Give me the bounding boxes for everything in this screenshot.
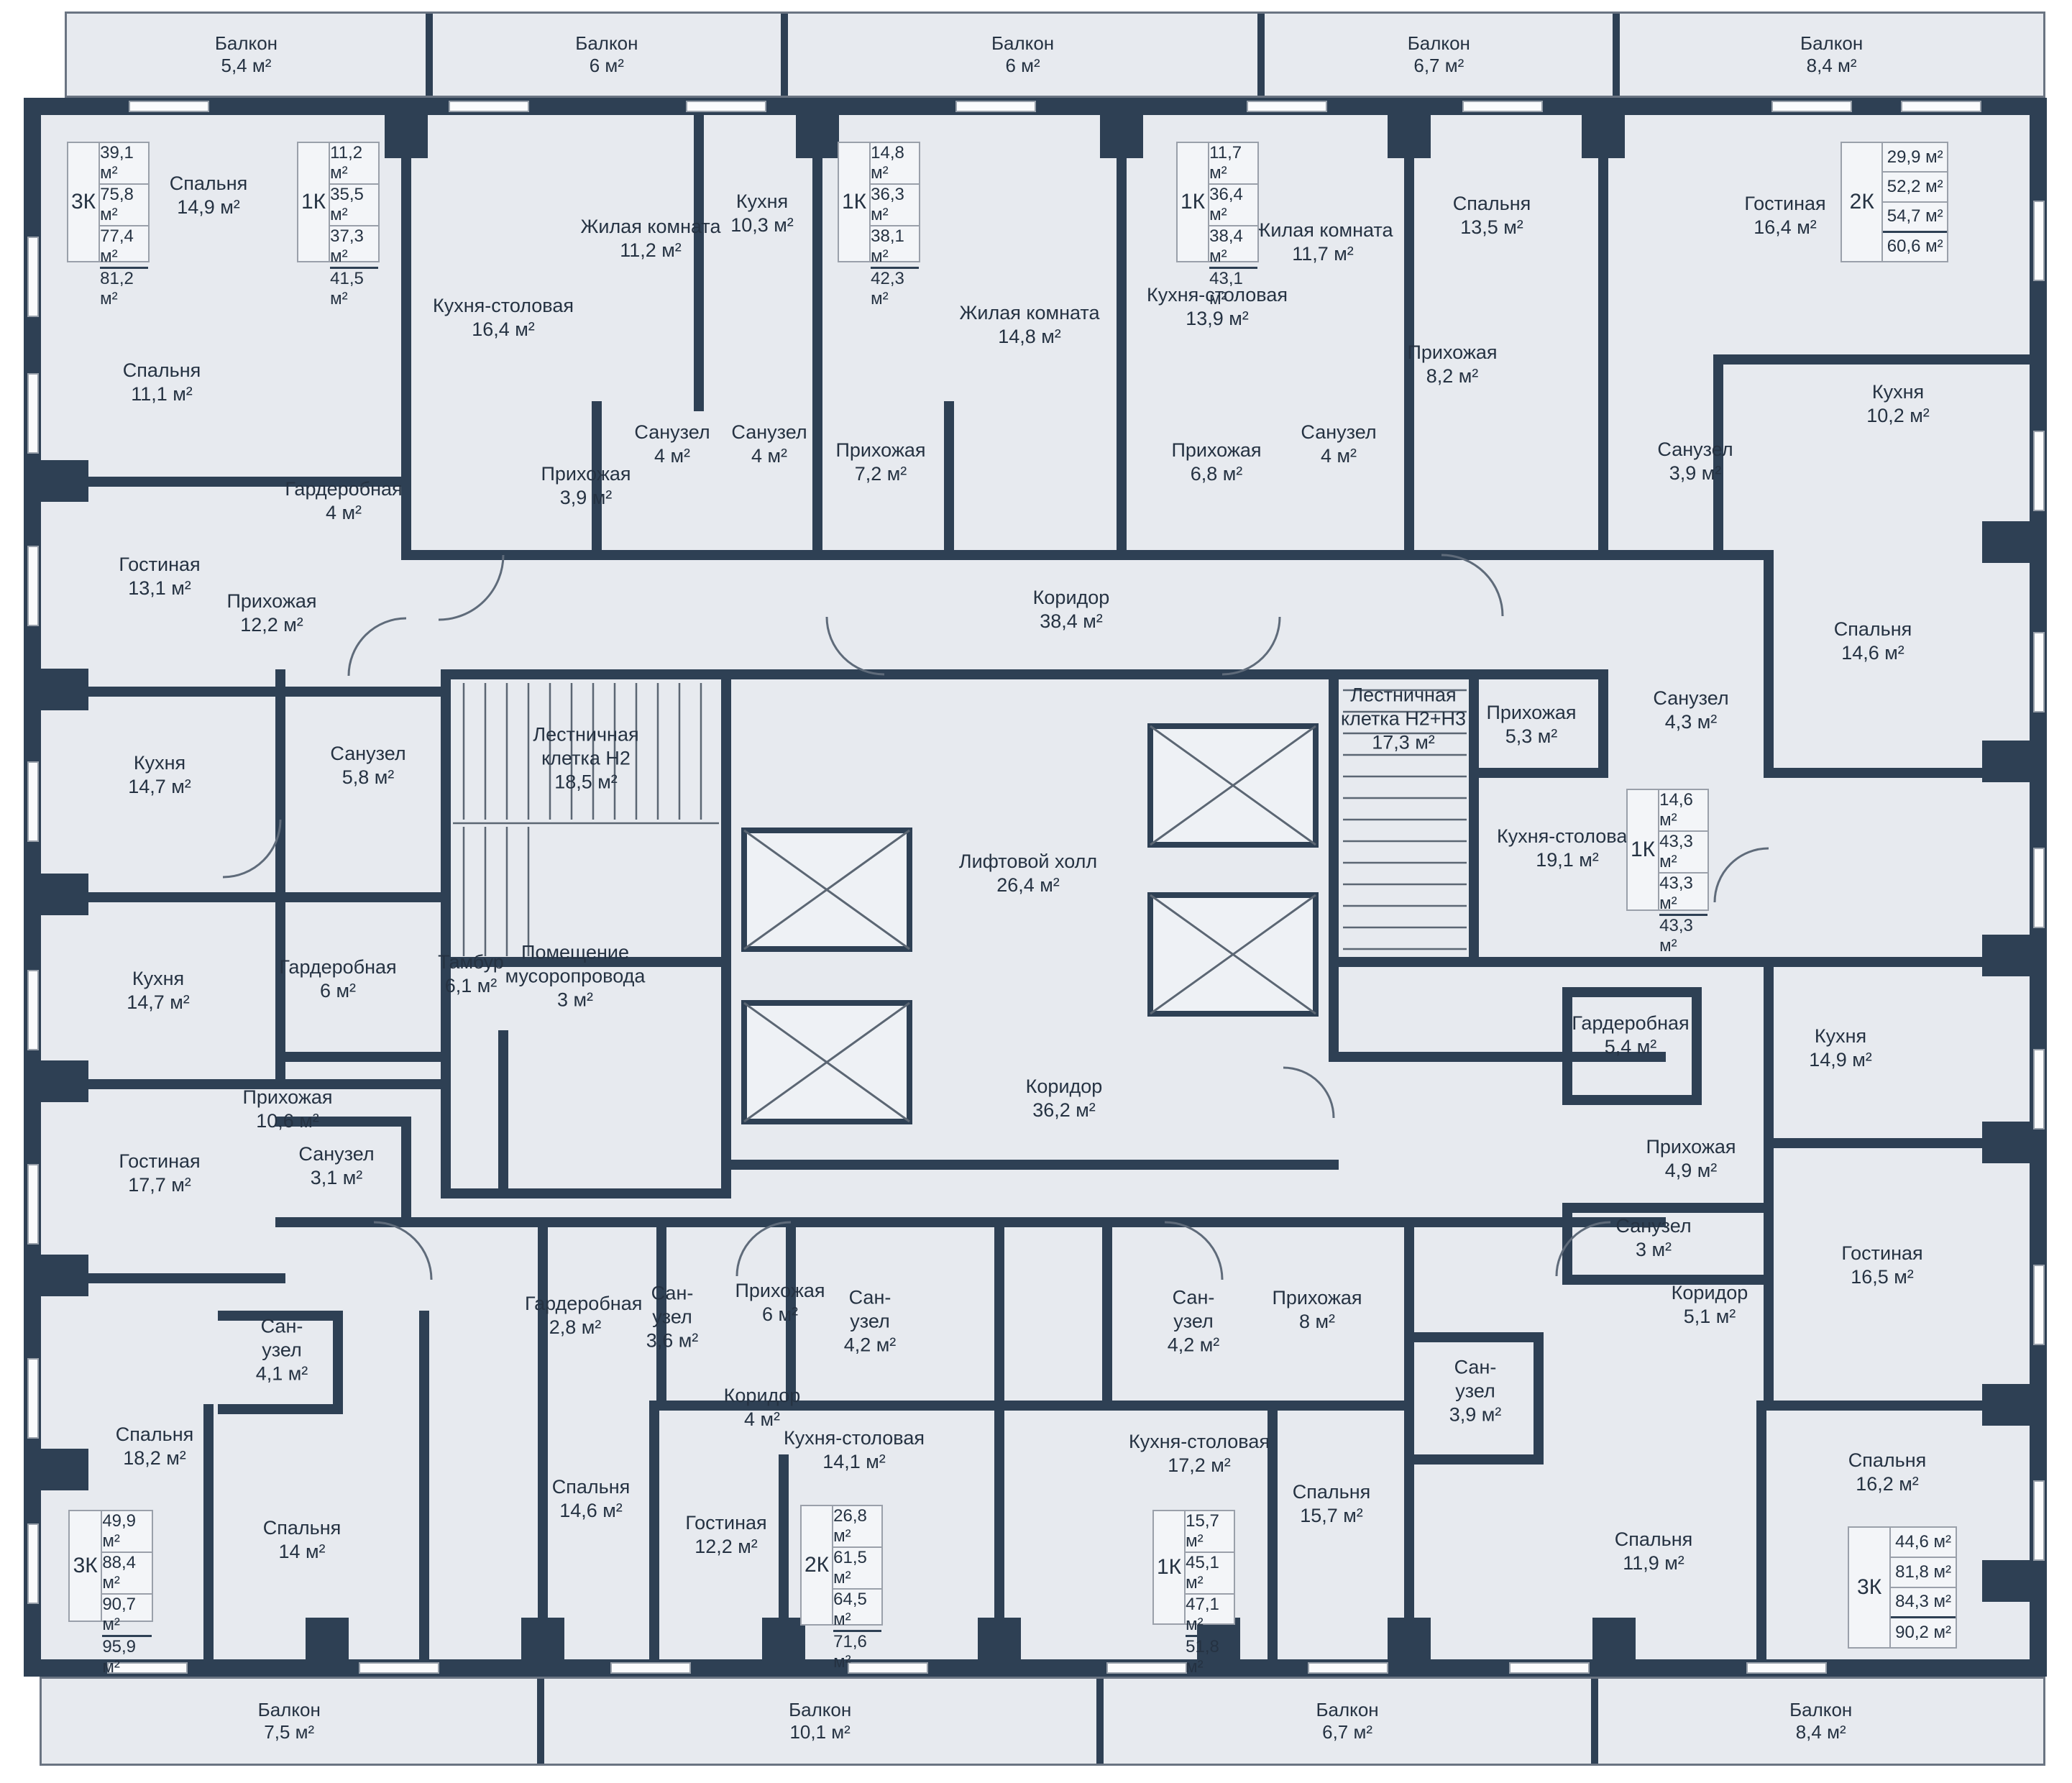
room-name: Жилая комната: [1252, 219, 1393, 242]
room-label: Жилая комната 11,7 м²: [1252, 219, 1393, 266]
apartment-area-value: 11,7 м²: [1209, 143, 1257, 183]
room-area: 16,2 м²: [1848, 1472, 1927, 1496]
room-label: Спальня 15,7 м²: [1293, 1480, 1371, 1528]
room-area: 14,6 м²: [552, 1499, 631, 1523]
room-area: 26,4 м²: [959, 874, 1097, 897]
room-area: 13,1 м²: [119, 577, 200, 600]
room-label: Прихожая 10,6 м²: [242, 1086, 332, 1133]
room-label: Спальня 13,5 м²: [1453, 192, 1531, 239]
room-label: Коридор 4 м²: [724, 1384, 801, 1431]
apartment-area-value: 37,3 м²: [330, 225, 378, 267]
apartment-area-value: 75,8 м²: [100, 183, 148, 225]
room-area: 3 м²: [1615, 1238, 1691, 1262]
apartment-area-value: 36,4 м²: [1209, 183, 1257, 225]
apartment-type: 2К: [802, 1506, 833, 1624]
apartment-spec-table: 2К 26,8 м²61,5 м²64,5 м²71,6 м²: [800, 1505, 883, 1626]
apartment-area-value: 88,4 м²: [102, 1551, 152, 1593]
room-area: 38,4 м²: [1033, 610, 1110, 633]
room-area: 5,1 м²: [1672, 1305, 1748, 1329]
apartment-area-value: 81,2 м²: [100, 267, 148, 309]
room-area: 17,2 м²: [1129, 1454, 1270, 1477]
room-name: Спальня: [1453, 192, 1531, 216]
room-label: Прихожая 6,8 м²: [1171, 439, 1261, 486]
room-area: 6 м²: [735, 1303, 825, 1326]
room-name: Гардеробная: [279, 955, 396, 979]
room-label: Кухня-столовая 19,1 м²: [1497, 825, 1638, 872]
room-area: 16,5 м²: [1841, 1265, 1922, 1289]
room-area: 13,9 м²: [1147, 307, 1288, 331]
room-label: Спальня 14,6 м²: [1834, 618, 1912, 665]
apartment-type: 1К: [839, 143, 871, 261]
apartment-areas: 49,9 м²88,4 м²90,7 м²95,9 м²: [102, 1511, 152, 1621]
room-label: Коридор 38,4 м²: [1033, 586, 1110, 633]
room-area: 14 м²: [263, 1540, 341, 1564]
room-name: Спальня: [552, 1475, 631, 1499]
room-name: Спальня: [1834, 618, 1912, 641]
room-name: Прихожая: [226, 590, 316, 613]
apartment-area-value: 61,5 м²: [833, 1546, 881, 1588]
room-label: Жилая комната 11,2 м²: [580, 215, 720, 262]
room-name: Санузел: [634, 421, 710, 444]
room-area: 36,2 м²: [1026, 1099, 1103, 1122]
floor-plan: Балкон 5,4 м² Балкон 6 м² Балкон 6 м² Ба…: [0, 0, 2072, 1783]
apartment-area-value: 42,3 м²: [871, 267, 919, 309]
room-name: Гардеробная: [285, 477, 402, 501]
room-name: Санузел: [1615, 1214, 1691, 1238]
room-name: Спальня: [1848, 1449, 1927, 1472]
room-label: Кухня 14,7 м²: [127, 967, 190, 1014]
apartment-spec-table: 1К 11,2 м²35,5 м²37,3 м²41,5 м²: [297, 142, 380, 262]
room-name: Санузел: [330, 742, 405, 766]
room-name: Гостиная: [685, 1511, 766, 1535]
room-area: 3,6 м²: [638, 1329, 707, 1352]
room-area: 4 м²: [731, 444, 807, 468]
room-name: Коридор: [1672, 1281, 1748, 1305]
apartment-area-value: 43,3 м²: [1659, 872, 1707, 914]
room-label: Гостиная 17,7 м²: [119, 1150, 200, 1197]
room-name: Гардеробная: [1572, 1012, 1689, 1035]
room-area: 11,9 м²: [1615, 1551, 1693, 1575]
room-name: Санузел: [298, 1142, 374, 1166]
room-area: 14,1 м²: [784, 1450, 925, 1474]
room-area: 14,8 м²: [959, 325, 1099, 349]
room-area: 16,4 м²: [433, 318, 574, 342]
apartment-area-value: 51,8 м²: [1186, 1635, 1234, 1677]
room-label: Санузел 3 м²: [1615, 1214, 1691, 1262]
room-label: Кухня 10,2 м²: [1866, 380, 1930, 428]
apartment-area-value: 45,1 м²: [1186, 1551, 1234, 1593]
room-label: Лифтовой холл 26,4 м²: [959, 850, 1097, 897]
room-area: 12,2 м²: [685, 1535, 766, 1559]
room-label: Сан-узел 4,2 м²: [836, 1286, 904, 1357]
room-name: Сан-узел: [248, 1315, 316, 1362]
apartment-area-value: 54,7 м²: [1883, 201, 1947, 231]
room-area: 10,2 м²: [1866, 404, 1930, 428]
room-label: Гостиная 16,5 м²: [1841, 1242, 1922, 1289]
room-name: Жилая комната: [959, 301, 1099, 325]
room-name: Кухня: [127, 967, 190, 991]
apartment-area-value: 14,8 м²: [871, 143, 919, 183]
room-name: Прихожая: [1646, 1135, 1736, 1159]
room-area: 19,1 м²: [1497, 848, 1638, 872]
room-label: Прихожая 7,2 м²: [835, 439, 925, 486]
room-name: Гостиная: [119, 1150, 200, 1173]
room-area: 12,2 м²: [226, 613, 316, 637]
room-name: Коридор: [1033, 586, 1110, 610]
apartment-type: 1К: [1628, 790, 1659, 909]
room-name: Сан-узел: [1160, 1286, 1228, 1334]
room-name: Кухня: [128, 751, 191, 775]
room-label: Спальня 16,2 м²: [1848, 1449, 1927, 1496]
room-name: Санузел: [1653, 687, 1728, 710]
room-area: 3 м²: [478, 988, 672, 1012]
room-area: 8 м²: [1272, 1310, 1362, 1334]
room-name: Спальня: [1293, 1480, 1371, 1504]
room-label: Прихожая 3,9 м²: [541, 462, 631, 510]
apartment-area-value: 43,3 м²: [1659, 914, 1707, 956]
room-label: Сан-узел 4,2 м²: [1160, 1286, 1228, 1357]
room-area: 15,7 м²: [1293, 1504, 1371, 1528]
room-area: 10,3 м²: [730, 214, 794, 237]
room-area: 8,2 м²: [1407, 365, 1497, 388]
apartment-area-value: 15,7 м²: [1186, 1511, 1234, 1551]
room-label: Прихожая 5,3 м²: [1486, 701, 1576, 748]
apartment-area-value: 71,6 м²: [833, 1630, 881, 1672]
room-label: Сан-узел 3,6 м²: [638, 1282, 707, 1353]
room-label: Прихожая 12,2 м²: [226, 590, 316, 637]
room-label: Санузел 4 м²: [1301, 421, 1376, 468]
room-name: Прихожая: [1407, 341, 1497, 365]
room-area: 4,3 м²: [1653, 710, 1728, 734]
apartment-type: 3К: [1849, 1528, 1891, 1647]
apartment-type: 2К: [1842, 143, 1883, 261]
apartment-type: 1К: [1154, 1511, 1186, 1623]
room-label: Кухня-столовая 16,4 м²: [433, 294, 574, 342]
room-label: Санузел 3,1 м²: [298, 1142, 374, 1190]
room-name: Кухня-столовая: [784, 1426, 925, 1450]
room-name: Спальня: [123, 359, 201, 382]
room-label: Гостиная 16,4 м²: [1744, 192, 1825, 239]
room-label: Сан-узел 3,9 м²: [1441, 1356, 1510, 1427]
room-name: Кухня-столовая: [1129, 1430, 1270, 1454]
room-label: Спальня 14,9 м²: [170, 172, 248, 219]
room-name: Прихожая: [1486, 701, 1576, 725]
apartment-area-value: 43,3 м²: [1659, 830, 1707, 872]
room-name: Прихожая: [735, 1279, 825, 1303]
room-area: 11,1 м²: [123, 382, 201, 406]
room-name: Прихожая: [1171, 439, 1261, 462]
apartment-area-value: 38,4 м²: [1209, 225, 1257, 267]
room-label: Прихожая 6 м²: [735, 1279, 825, 1326]
room-name: Кухня-столовая: [1497, 825, 1638, 848]
room-name: Спальня: [170, 172, 248, 196]
room-area: 14,9 м²: [1809, 1048, 1872, 1072]
room-label: Кухня-столовая 14,1 м²: [784, 1426, 925, 1474]
room-area: 14,7 м²: [127, 991, 190, 1014]
room-label: Гардеробная 5,4 м²: [1572, 1012, 1689, 1059]
room-name: Сан-узел: [836, 1286, 904, 1334]
apartment-area-value: 49,9 м²: [102, 1511, 152, 1551]
room-label: Санузел 4 м²: [634, 421, 710, 468]
room-label: Гардеробная 2,8 м²: [525, 1292, 625, 1339]
room-area: 4,2 м²: [1160, 1333, 1228, 1357]
room-area: 14,7 м²: [128, 775, 191, 799]
apartment-area-value: 47,1 м²: [1186, 1593, 1234, 1635]
room-area: 14,9 м²: [170, 196, 248, 219]
apartment-spec-table: 3К 44,6 м²81,8 м²84,3 м²90,2 м²: [1848, 1526, 1957, 1649]
apartment-area-value: 90,2 м²: [1891, 1616, 1956, 1647]
room-label: Спальня 14 м²: [263, 1516, 341, 1564]
room-area: 17,3 м²: [1321, 730, 1486, 754]
apartment-spec-table: 1К 11,7 м²36,4 м²38,4 м²43,1 м²: [1176, 142, 1259, 262]
room-name: Лестничная клетка Н2+Н3: [1321, 684, 1486, 731]
room-name: Спальня: [263, 1516, 341, 1540]
room-area: 5,4 м²: [1572, 1035, 1689, 1059]
apartment-area-value: 26,8 м²: [833, 1506, 881, 1546]
room-name: Кухня: [730, 190, 794, 214]
room-name: Сан-узел: [638, 1282, 707, 1329]
room-label: Лестничная клетка Н2 18,5 м²: [510, 723, 661, 794]
apartment-area-value: 43,1 м²: [1209, 267, 1257, 309]
labels-layer: Спальня 14,9 м² Жилая комната 11,2 м² Ку…: [0, 0, 2072, 1783]
apartment-area-value: 36,3 м²: [871, 183, 919, 225]
apartment-area-value: 77,4 м²: [100, 225, 148, 267]
apartment-area-value: 81,8 м²: [1891, 1557, 1956, 1587]
room-label: Санузел 5,8 м²: [330, 742, 405, 789]
room-area: 6,8 м²: [1171, 462, 1261, 486]
room-area: 3,9 м²: [541, 486, 631, 510]
room-label: Кухня 10,3 м²: [730, 190, 794, 237]
room-label: Помещение мусоропровода 3 м²: [478, 941, 672, 1012]
room-label: Гардеробная 6 м²: [279, 955, 396, 1003]
room-area: 11,7 м²: [1252, 242, 1393, 266]
room-name: Лестничная клетка Н2: [510, 723, 661, 771]
apartment-type: 1К: [298, 143, 330, 261]
apartment-areas: 11,7 м²36,4 м²38,4 м²43,1 м²: [1209, 143, 1257, 261]
apartment-type: 1К: [1178, 143, 1209, 261]
apartment-spec-table: 3К 49,9 м²88,4 м²90,7 м²95,9 м²: [68, 1510, 153, 1622]
room-name: Санузел: [1301, 421, 1376, 444]
room-name: Спальня: [1615, 1528, 1693, 1551]
room-name: Гардеробная: [525, 1292, 625, 1316]
apartment-area-value: 41,5 м²: [330, 267, 378, 309]
room-area: 17,7 м²: [119, 1173, 200, 1197]
room-name: Кухня-столовая: [433, 294, 574, 318]
room-name: Лифтовой холл: [959, 850, 1097, 874]
room-area: 11,2 м²: [580, 239, 720, 262]
room-area: 5,8 м²: [330, 766, 405, 789]
room-label: Жилая комната 14,8 м²: [959, 301, 1099, 349]
apartment-areas: 15,7 м²45,1 м²47,1 м²51,8 м²: [1186, 1511, 1234, 1623]
apartment-area-value: 95,9 м²: [102, 1635, 152, 1677]
room-label: Прихожая 8,2 м²: [1407, 341, 1497, 388]
room-area: 7,2 м²: [835, 462, 925, 486]
apartment-areas: 29,9 м²52,2 м²54,7 м²60,6 м²: [1883, 143, 1947, 261]
room-name: Коридор: [1026, 1075, 1103, 1099]
room-area: 6 м²: [279, 979, 396, 1003]
room-name: Гостиная: [1744, 192, 1825, 216]
room-label: Санузел 3,9 м²: [1657, 438, 1733, 485]
room-area: 4 м²: [285, 501, 402, 525]
apartment-areas: 39,1 м²75,8 м²77,4 м²81,2 м²: [100, 143, 148, 261]
room-area: 4,9 м²: [1646, 1159, 1736, 1183]
apartment-spec-table: 1К 15,7 м²45,1 м²47,1 м²51,8 м²: [1152, 1510, 1235, 1625]
apartment-areas: 11,2 м²35,5 м²37,3 м²41,5 м²: [330, 143, 378, 261]
room-area: 3,9 м²: [1657, 462, 1733, 485]
room-name: Сан-узел: [1441, 1356, 1510, 1403]
apartment-area-value: 14,6 м²: [1659, 790, 1707, 830]
apartment-areas: 14,6 м²43,3 м²43,3 м²43,3 м²: [1659, 790, 1707, 909]
room-area: 2,8 м²: [525, 1316, 625, 1339]
apartment-area-value: 60,6 м²: [1883, 231, 1947, 261]
room-name: Жилая комната: [580, 215, 720, 239]
apartment-spec-table: 1К 14,8 м²36,3 м²38,1 м²42,3 м²: [838, 142, 920, 262]
room-label: Лестничная клетка Н2+Н3 17,3 м²: [1321, 684, 1486, 755]
room-label: Спальня 11,1 м²: [123, 359, 201, 406]
room-name: Кухня: [1809, 1025, 1872, 1048]
room-name: Прихожая: [242, 1086, 332, 1109]
apartment-areas: 44,6 м²81,8 м²84,3 м²90,2 м²: [1891, 1528, 1956, 1647]
apartment-type: 3К: [70, 1511, 102, 1621]
apartment-area-value: 38,1 м²: [871, 225, 919, 267]
room-area: 16,4 м²: [1744, 216, 1825, 239]
apartment-area-value: 44,6 м²: [1891, 1528, 1956, 1557]
room-area: 4,1 м²: [248, 1362, 316, 1385]
room-area: 10,6 м²: [242, 1109, 332, 1133]
apartment-area-value: 39,1 м²: [100, 143, 148, 183]
room-area: 4 м²: [634, 444, 710, 468]
apartment-area-value: 52,2 м²: [1883, 171, 1947, 201]
apartment-area-value: 64,5 м²: [833, 1588, 881, 1630]
room-label: Спальня 11,9 м²: [1615, 1528, 1693, 1575]
room-label: Санузел 4 м²: [731, 421, 807, 468]
apartment-areas: 26,8 м²61,5 м²64,5 м²71,6 м²: [833, 1506, 881, 1624]
room-area: 14,6 м²: [1834, 641, 1912, 665]
room-name: Кухня: [1866, 380, 1930, 404]
apartment-spec-table: 3К 39,1 м²75,8 м²77,4 м²81,2 м²: [67, 142, 150, 262]
room-label: Спальня 18,2 м²: [116, 1423, 194, 1470]
room-name: Гостиная: [119, 553, 200, 577]
apartment-areas: 14,8 м²36,3 м²38,1 м²42,3 м²: [871, 143, 919, 261]
room-name: Коридор: [724, 1384, 801, 1408]
room-name: Санузел: [1657, 438, 1733, 462]
room-label: Гардеробная 4 м²: [285, 477, 402, 525]
room-label: Спальня 14,6 м²: [552, 1475, 631, 1523]
room-name: Прихожая: [835, 439, 925, 462]
room-name: Прихожая: [541, 462, 631, 486]
apartment-area-value: 11,2 м²: [330, 143, 378, 183]
room-label: Гостиная 12,2 м²: [685, 1511, 766, 1559]
room-area: 4 м²: [1301, 444, 1376, 468]
room-area: 18,2 м²: [116, 1447, 194, 1470]
room-label: Прихожая 8 м²: [1272, 1286, 1362, 1334]
room-label: Санузел 4,3 м²: [1653, 687, 1728, 734]
room-area: 13,5 м²: [1453, 216, 1531, 239]
room-name: Спальня: [116, 1423, 194, 1447]
room-label: Прихожая 4,9 м²: [1646, 1135, 1736, 1183]
room-area: 3,9 м²: [1441, 1403, 1510, 1426]
room-label: Кухня-столовая 17,2 м²: [1129, 1430, 1270, 1477]
room-area: 3,1 м²: [298, 1166, 374, 1190]
room-name: Помещение мусоропровода: [478, 941, 672, 989]
room-name: Санузел: [731, 421, 807, 444]
room-name: Гостиная: [1841, 1242, 1922, 1265]
room-area: 4,2 м²: [836, 1333, 904, 1357]
apartment-area-value: 35,5 м²: [330, 183, 378, 225]
apartment-type: 3К: [68, 143, 100, 261]
apartment-spec-table: 2К 29,9 м²52,2 м²54,7 м²60,6 м²: [1840, 142, 1948, 262]
room-name: Прихожая: [1272, 1286, 1362, 1310]
room-area: 18,5 м²: [510, 770, 661, 794]
apartment-area-value: 90,7 м²: [102, 1593, 152, 1635]
room-label: Коридор 5,1 м²: [1672, 1281, 1748, 1329]
apartment-area-value: 84,3 м²: [1891, 1587, 1956, 1617]
room-label: Кухня 14,9 м²: [1809, 1025, 1872, 1072]
room-label: Кухня 14,7 м²: [128, 751, 191, 799]
room-label: Коридор 36,2 м²: [1026, 1075, 1103, 1122]
apartment-spec-table: 1К 14,6 м²43,3 м²43,3 м²43,3 м²: [1626, 789, 1709, 911]
room-label: Сан-узел 4,1 м²: [248, 1315, 316, 1386]
room-label: Гостиная 13,1 м²: [119, 553, 200, 600]
room-area: 5,3 м²: [1486, 725, 1576, 748]
apartment-area-value: 29,9 м²: [1883, 143, 1947, 171]
